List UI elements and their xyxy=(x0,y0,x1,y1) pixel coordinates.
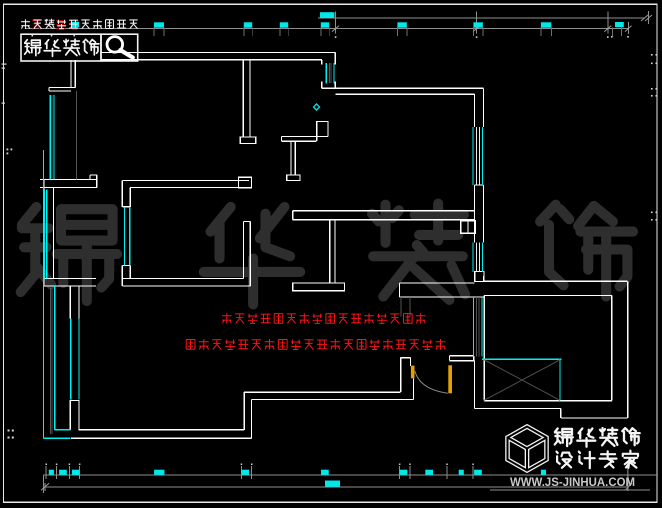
svg-text:WWW.JS-JINHUA.COM: WWW.JS-JINHUA.COM xyxy=(510,475,635,489)
